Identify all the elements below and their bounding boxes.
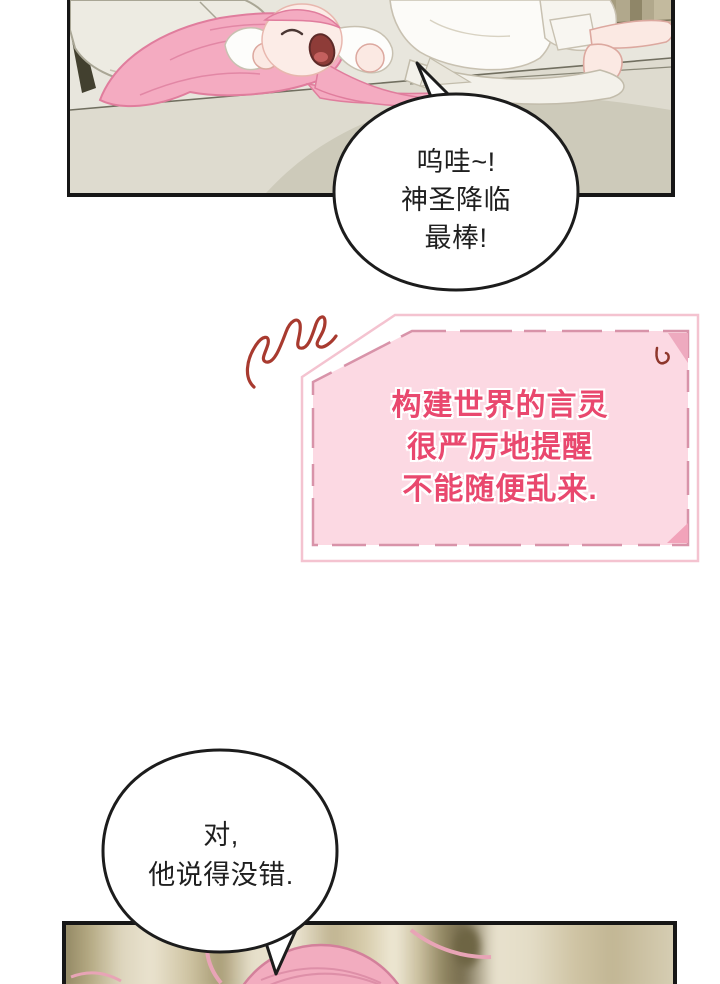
speech-bubble-reply-text: 对, 他说得没错. [106, 815, 336, 895]
bubble-line: 他说得没错. [106, 855, 336, 895]
bubble-line: 神圣降临 [338, 181, 574, 219]
note-line: 构建世界的言灵 [310, 385, 690, 427]
bubble-line: 对, [106, 815, 336, 855]
speech-bubble-exclaim-text: 呜哇~! 神圣降临 最棒! [338, 143, 574, 257]
comic-page: 构建世界的言灵 很严厉地提醒 不能随便乱来. 呜哇~! 神圣降临 最棒! 对, … [0, 0, 720, 984]
tongue [314, 52, 328, 62]
note-line: 很严厉地提醒 [310, 427, 690, 469]
hair-strand-right [411, 930, 491, 957]
note-line: 不能随便乱来. [310, 469, 690, 511]
note-box-text: 构建世界的言灵 很严厉地提醒 不能随便乱来. [310, 385, 690, 511]
bubble-line: 呜哇~! [338, 143, 574, 181]
bubble-line: 最棒! [338, 219, 574, 257]
